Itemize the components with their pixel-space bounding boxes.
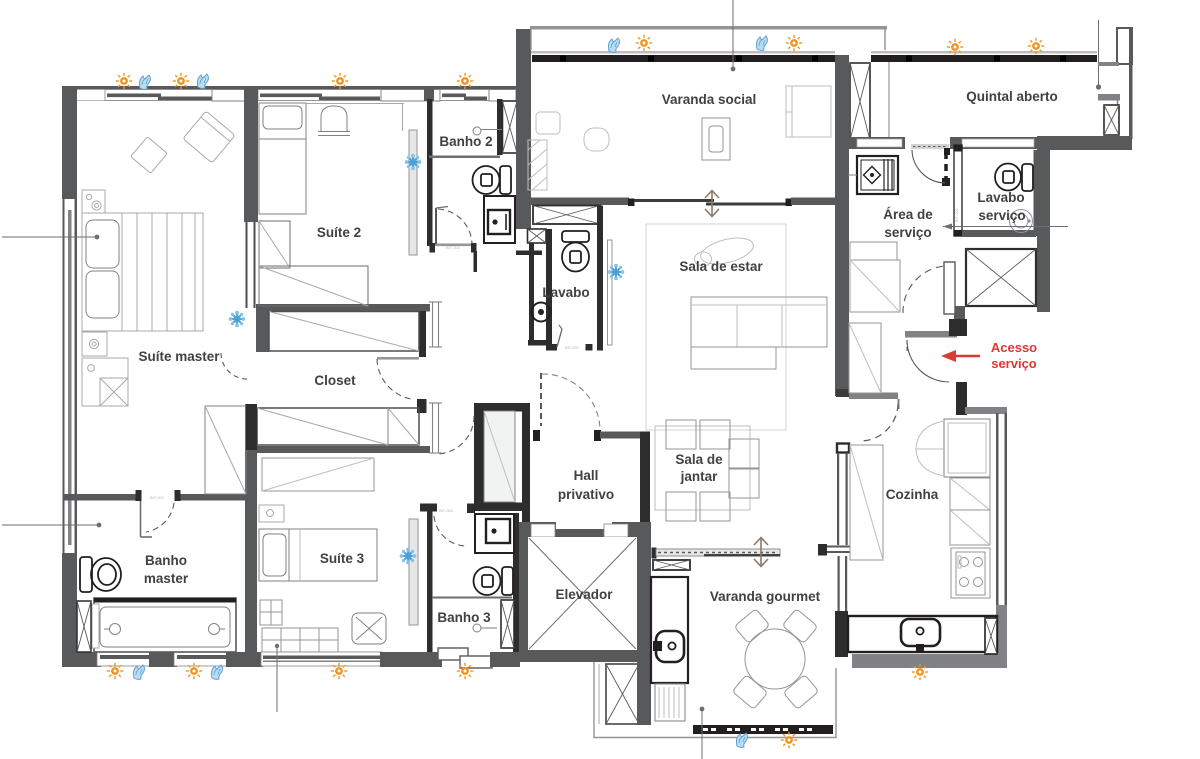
svg-text:Área de: Área de [883, 207, 933, 222]
svg-text:Banho 3: Banho 3 [437, 610, 491, 625]
svg-text:Elevador: Elevador [555, 587, 613, 602]
svg-text:Cozinha: Cozinha [886, 487, 939, 502]
svg-text:BIT-001: BIT-001 [565, 345, 580, 350]
svg-text:Sala de: Sala de [675, 452, 723, 467]
svg-text:Banho: Banho [145, 553, 187, 568]
svg-text:Varanda gourmet: Varanda gourmet [710, 589, 821, 604]
svg-text:Closet: Closet [314, 373, 356, 388]
svg-text:Lavabo: Lavabo [542, 285, 589, 300]
svg-text:master: master [144, 571, 189, 586]
svg-text:Suíte master: Suíte master [138, 349, 220, 364]
svg-text:BIT-001: BIT-001 [439, 508, 454, 513]
svg-text:Quintal aberto: Quintal aberto [966, 89, 1058, 104]
svg-text:Sala de estar: Sala de estar [679, 259, 763, 274]
svg-text:Varanda social: Varanda social [662, 92, 757, 107]
svg-text:serviço: serviço [884, 225, 931, 240]
svg-text:privativo: privativo [558, 487, 614, 502]
svg-text:Banho 2: Banho 2 [439, 134, 492, 149]
svg-text:serviço: serviço [978, 208, 1025, 223]
svg-text:Suíte 2: Suíte 2 [317, 225, 361, 240]
svg-text:serviço: serviço [991, 356, 1037, 371]
svg-text:BIT-001: BIT-001 [150, 495, 165, 500]
svg-text:Lavabo: Lavabo [977, 190, 1024, 205]
svg-text:Suíte 3: Suíte 3 [320, 551, 365, 566]
svg-text:Hall: Hall [574, 468, 599, 483]
svg-text:BIT-001: BIT-001 [446, 245, 461, 250]
svg-text:jantar: jantar [680, 469, 719, 484]
svg-text:Acesso: Acesso [991, 340, 1037, 355]
svg-text:BIT-001: BIT-001 [954, 207, 959, 222]
